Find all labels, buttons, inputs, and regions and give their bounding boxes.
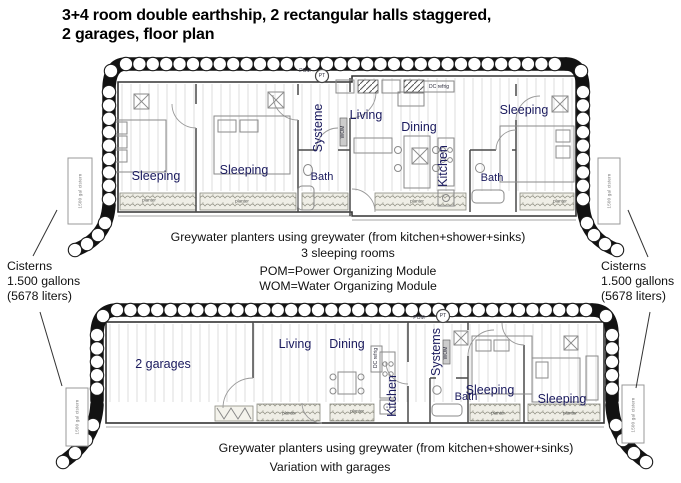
cisterns-right-line-1: Cisterns [601, 259, 674, 274]
equipment-label-pom-2: POM [413, 315, 424, 321]
upper-plan-caption-rooms: 3 sleeping rooms [301, 246, 395, 260]
lower-plan-caption-variation: Variation with garages [270, 460, 391, 474]
room-label-living-1: Living [350, 108, 383, 122]
room-label-dining-2: Dining [329, 337, 364, 351]
equipment-label-pom-1: POM [299, 68, 310, 74]
cistern-label-lower-right: 1500 gal cistern [631, 398, 636, 433]
wom-definition: WOM=Water Organizing Module [259, 279, 437, 293]
page-title: 3+4 room double earthship, 2 rectangular… [62, 6, 491, 44]
room-label-kitchen-1: Kitchen [436, 145, 450, 187]
room-label-sleeping-3: Sleeping [500, 103, 549, 117]
planter-label-1: planter [142, 198, 156, 203]
equipment-label-dc-refrig-1: DC refrig [429, 84, 449, 90]
cistern-label-upper-right: 1500 gal cistern [607, 174, 612, 209]
room-label-sleeping-5: Sleeping [538, 392, 587, 406]
equipment-label-wom-1: WOM [340, 126, 346, 139]
room-label-kitchen-2: Kitchen [385, 375, 399, 417]
cisterns-left-line-2: 1.500 gallons [7, 274, 80, 289]
cisterns-right-line-3: (5678 liters) [601, 289, 674, 304]
room-label-sleeping-2: Sleeping [220, 163, 269, 177]
pom-definition: POM=Power Organizing Module [260, 264, 437, 278]
cisterns-annotation-right: Cisterns 1.500 gallons (5678 liters) [601, 259, 674, 304]
planter-label-4: planter [553, 199, 567, 204]
cisterns-left-line-1: Cisterns [7, 259, 80, 274]
page-title-line-2: 2 garages, floor plan [62, 25, 491, 44]
planter-label-3: planter [410, 199, 424, 204]
cistern-label-lower-left: 1500 gal cistern [75, 400, 80, 435]
room-label-living-2: Living [279, 337, 312, 351]
room-label-bath-1: Bath [311, 171, 334, 183]
planter-label-6: planter [350, 409, 364, 414]
cisterns-left-line-3: (5678 liters) [7, 289, 80, 304]
equipment-label-pt-2: PT [440, 313, 446, 319]
room-label-bath-2: Bath [481, 172, 504, 184]
upper-plan-caption-greywater: Greywater planters using greywater (from… [171, 230, 526, 244]
equipment-label-dc-refrig-2: DC refrig [373, 348, 379, 368]
planter-label-5: planter [282, 411, 296, 416]
equipment-label-wom-2: WOM [443, 347, 449, 360]
room-label-sleeping-1: Sleeping [132, 169, 181, 183]
cisterns-right-line-2: 1.500 gallons [601, 274, 674, 289]
lower-plan-caption-greywater: Greywater planters using greywater (from… [219, 441, 574, 455]
room-label-garages: 2 garages [135, 357, 191, 371]
room-label-systems-2: Systems [429, 328, 443, 376]
planter-label-7: planter [491, 411, 505, 416]
cisterns-annotation-left: Cisterns 1.500 gallons (5678 liters) [7, 259, 80, 304]
planter-label-8: planter [563, 411, 577, 416]
earthship-floor-plan-page: 3+4 room double earthship, 2 rectangular… [0, 0, 681, 483]
cistern-label-upper-left: 1500 gal cistern [78, 174, 83, 209]
page-title-line-1: 3+4 room double earthship, 2 rectangular… [62, 6, 491, 25]
planter-label-2: planter [235, 199, 249, 204]
room-label-dining-1: Dining [401, 120, 436, 134]
room-label-sleeping-4: Sleeping [466, 383, 515, 397]
equipment-label-pt-1: PT [319, 73, 325, 79]
room-label-systems-1: Systeme [311, 104, 325, 153]
